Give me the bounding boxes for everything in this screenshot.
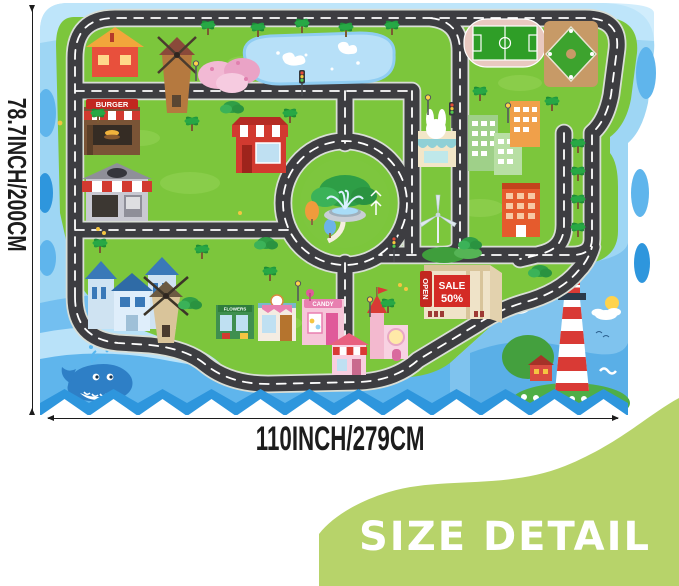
soccer-field xyxy=(464,19,546,67)
arrow-up-icon xyxy=(29,5,35,12)
burger-sign: BURGER xyxy=(96,100,129,109)
awning-icon xyxy=(232,117,288,137)
open-sign-text: OPEN xyxy=(421,278,430,299)
mat-illustration: BURGER xyxy=(40,3,660,415)
svg-text:50%: 50% xyxy=(441,293,463,305)
svg-text:SALE: SALE xyxy=(439,281,466,292)
pond xyxy=(244,33,394,84)
arrow-left-icon xyxy=(47,415,54,421)
red-shop xyxy=(232,117,288,173)
product-size-detail-image: BURGER xyxy=(0,0,679,586)
roundabout-fountain xyxy=(300,158,390,248)
awning-icon xyxy=(82,181,152,192)
sun-icon xyxy=(605,296,619,310)
flowers-sign: FLOWERS xyxy=(224,307,247,312)
flower-shop: FLOWERS xyxy=(216,305,254,339)
baseball-field xyxy=(544,21,598,87)
size-detail-badge: SIZE DETAIL xyxy=(319,386,679,586)
burger-shop: BURGER xyxy=(84,99,140,155)
candy-sign: CANDY xyxy=(312,302,333,308)
height-dimension-label: 78.7INCH/200CM xyxy=(1,98,31,252)
arrow-down-icon xyxy=(29,408,35,415)
play-mat: BURGER xyxy=(40,3,660,415)
badge-label: SIZE DETAIL xyxy=(359,514,651,560)
height-dimension-line xyxy=(32,6,33,414)
sale-sign: SALE 50% xyxy=(434,275,470,307)
